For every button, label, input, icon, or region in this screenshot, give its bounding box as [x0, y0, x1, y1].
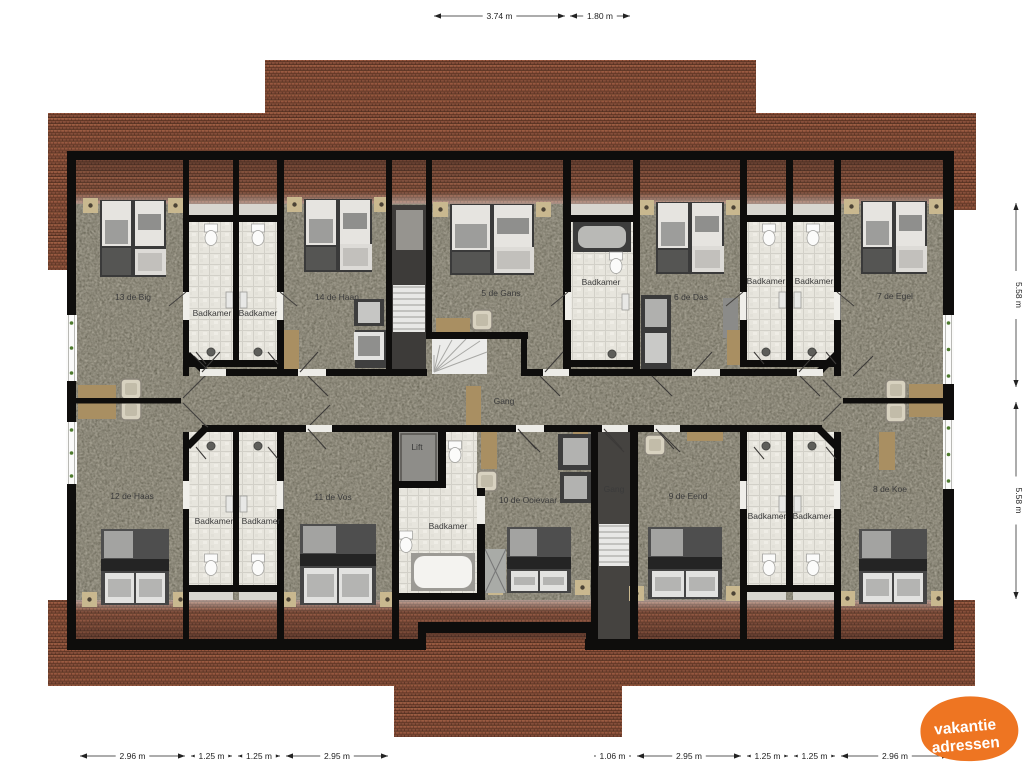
svg-text:Badkamer: Badkamer — [193, 308, 232, 318]
svg-text:2.95 m: 2.95 m — [676, 751, 702, 761]
svg-text:5.58 m: 5.58 m — [1014, 488, 1024, 514]
svg-text:6 de Das: 6 de Das — [674, 292, 708, 302]
svg-text:9 de Eend: 9 de Eend — [669, 491, 708, 501]
svg-text:2.96 m: 2.96 m — [882, 751, 908, 761]
svg-text:Badkamer: Badkamer — [747, 276, 786, 286]
svg-text:7 de Egel: 7 de Egel — [877, 291, 913, 301]
svg-text:1.25 m: 1.25 m — [199, 751, 225, 761]
svg-text:Badkamer: Badkamer — [239, 308, 278, 318]
svg-text:Gang: Gang — [604, 484, 625, 494]
svg-text:2.95 m: 2.95 m — [324, 751, 350, 761]
svg-text:Lift: Lift — [411, 442, 423, 452]
svg-text:Badkamer: Badkamer — [242, 516, 281, 526]
svg-text:1.25 m: 1.25 m — [755, 751, 781, 761]
svg-text:Gang: Gang — [494, 396, 515, 406]
svg-text:1.80 m: 1.80 m — [587, 11, 613, 21]
svg-text:1.06 m: 1.06 m — [600, 751, 626, 761]
svg-text:14 de Haan: 14 de Haan — [315, 292, 359, 302]
svg-text:5.58 m: 5.58 m — [1014, 282, 1024, 308]
svg-text:Badkamer: Badkamer — [582, 277, 621, 287]
svg-text:Badkamer: Badkamer — [793, 511, 832, 521]
svg-text:11 de Vos: 11 de Vos — [314, 492, 351, 502]
svg-text:5 de Gans: 5 de Gans — [481, 288, 520, 298]
svg-text:Badkamer: Badkamer — [195, 516, 234, 526]
svg-text:8 de Koe: 8 de Koe — [873, 484, 907, 494]
svg-text:Badkamer: Badkamer — [748, 511, 787, 521]
svg-text:2.96 m: 2.96 m — [120, 751, 146, 761]
svg-text:12 de Haas: 12 de Haas — [110, 491, 153, 501]
svg-text:13 de Big: 13 de Big — [115, 292, 151, 302]
svg-text:1.25 m: 1.25 m — [802, 751, 828, 761]
svg-text:Badkamer: Badkamer — [429, 521, 468, 531]
svg-text:1.25 m: 1.25 m — [246, 751, 272, 761]
svg-text:10 de Ooievaar: 10 de Ooievaar — [499, 495, 557, 505]
svg-text:3.74 m: 3.74 m — [487, 11, 513, 21]
svg-text:Badkamer: Badkamer — [795, 276, 834, 286]
